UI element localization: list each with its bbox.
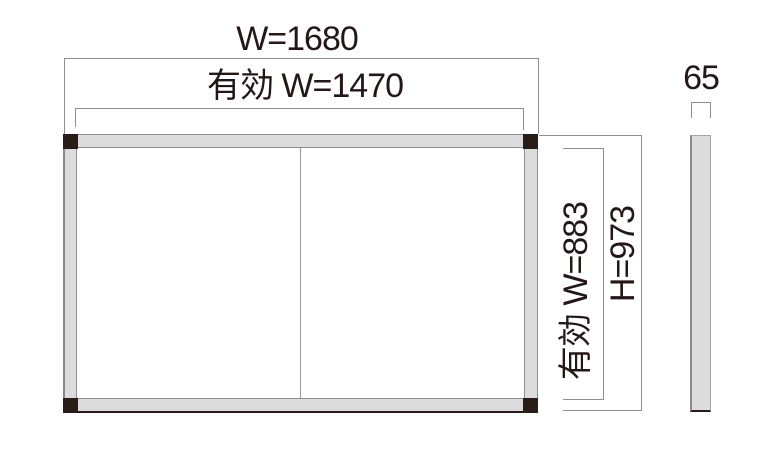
front-view-bottom-rail [63, 398, 538, 413]
thickness-label: 65 [683, 61, 719, 95]
dimension-line-thickness [691, 102, 711, 103]
corner-cap-top-left [63, 134, 78, 149]
extension-line-overall-width-left [64, 58, 65, 134]
extension-line-effective-width-left [75, 108, 76, 127]
front-view-top-rail [63, 134, 538, 148]
corner-cap-bottom-left [63, 398, 78, 413]
corner-cap-top-right [523, 134, 538, 149]
extension-line-overall-height-top [539, 135, 642, 136]
dimension-drawing: W=1680 有効 W=1470 有効 W=883 H=973 65 [0, 0, 777, 456]
effective-height-label: 有効 W=883 [559, 202, 593, 380]
extension-line-thickness-right [710, 102, 711, 118]
extension-line-effective-height-bottom [563, 399, 604, 400]
extension-line-overall-height-bottom [563, 410, 642, 411]
extension-line-overall-width-right [538, 58, 539, 134]
effective-width-label: 有効 W=1470 [207, 69, 403, 103]
front-view-center-divider [300, 148, 301, 398]
overall-width-label: W=1680 [236, 22, 358, 56]
front-view-right-stile [524, 147, 538, 399]
extension-line-thickness-left [691, 102, 692, 118]
dimension-line-overall-width [64, 58, 539, 59]
side-view-profile [690, 135, 711, 412]
extension-line-effective-width-right [523, 108, 524, 130]
front-view-left-stile [63, 147, 77, 399]
extension-line-effective-height-top [563, 148, 604, 149]
dimension-line-effective-width [75, 108, 524, 109]
corner-cap-bottom-right [523, 398, 538, 413]
overall-height-label: H=973 [606, 206, 640, 302]
